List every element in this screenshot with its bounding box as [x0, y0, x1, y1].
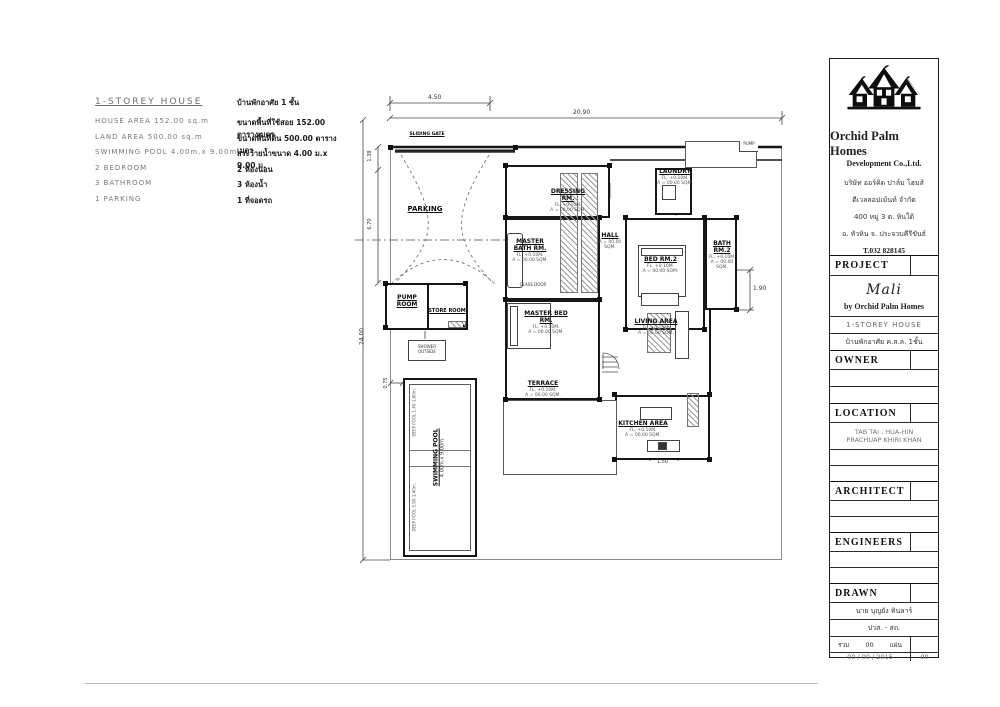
location-line1: TAB TAI , HUA-HIN: [855, 428, 913, 436]
spec-en-1: LAND AREA 500.00 sq.m: [95, 133, 203, 141]
company-address-2: ดีเวลลอปเม้นท์ จำกัด: [852, 195, 916, 206]
drawn-header: DRAWN: [830, 588, 910, 599]
project-type-en: 1-STOREY HOUSE: [846, 321, 922, 329]
page-number-cell: 00: [910, 653, 938, 661]
label-terrace: TERRACE FL. +0.10M. A = 00.00 SQM.: [520, 381, 566, 398]
drawn-name-row: นาย บุญยัง ทินลาร์: [830, 602, 938, 619]
spec-en-2: SWIMMING POOL 4.00m.x 9.00m.: [95, 148, 240, 156]
spec-en-4: 3 BATHROOM: [95, 179, 152, 187]
title-block: Orchid Palm Homes Development Co.,Ltd. บ…: [829, 58, 939, 658]
company-phone: T.032 828145: [863, 246, 905, 255]
pool-deep-top-label: DEEP POOL 1.40-1.80m.: [413, 380, 418, 444]
location-empty-row-2: [830, 465, 938, 481]
pool-deep-bottom-label: DEEP POOL 0.90-1.40m.: [413, 475, 418, 539]
dim-4-50: 4.50: [428, 94, 441, 101]
label-pump-room: PUMP ROOM: [388, 295, 426, 309]
label-dressing: DRESSING RM. FL. +0.10M. A = 00.00 SQM.: [545, 189, 591, 213]
drawing-date: 00 / 00 / 2015: [830, 653, 910, 661]
dim-20-90: 20.90: [573, 109, 590, 116]
kitchen-sink: [658, 442, 667, 450]
owner-header-cell: [910, 351, 938, 369]
engineers-header-cell: [910, 533, 938, 551]
spec-title-en: 1-STOREY HOUSE: [95, 97, 202, 107]
spec-row: 1 PARKING 1 ที่จอดรถ: [95, 195, 345, 211]
label-bath2: BATH RM.2 FL. +0.10M. A = 00.00 SQM.: [707, 241, 737, 270]
project-name-panel: Mali by Orchid Palm Homes: [830, 275, 938, 316]
kitchen-island: [640, 407, 672, 420]
location-line2: PRACHUAP KHIRI KHAN: [846, 436, 921, 444]
label-parking: PARKING: [395, 205, 455, 213]
pump-box: PUMP: [739, 141, 758, 152]
label-glass-door: GLASS DOOR: [515, 283, 551, 288]
spec-row: 2 BEDROOM 2 ห้องนอน: [95, 164, 345, 180]
footer-rule: [85, 683, 818, 684]
engineers-empty-row-2: [830, 567, 938, 583]
spec-th-4: 3 ห้องน้ำ: [237, 179, 267, 191]
dim-6-70: 6.70: [367, 211, 373, 237]
store-shelf-hatch: [448, 321, 466, 328]
company-name: Orchid Palm Homes: [830, 129, 938, 159]
label-master-bath: MASTER BATH RM. FL. +0.10M. A = 00.00 SQ…: [508, 239, 552, 263]
sheet-unit-label: แผ่น: [890, 640, 902, 650]
floor-plan: PUMP: [355, 85, 795, 575]
drawing-sheet: 1-STOREY HOUSE บ้านพักอาศัย 1 ชั้น HOUSE…: [0, 0, 1000, 707]
label-store-room: STORE ROOM: [427, 309, 467, 315]
drawn-name: นาย บุญยัง ทินลาร์: [856, 606, 913, 617]
engineers-header: ENGINEERS: [830, 537, 910, 548]
spec-list: 1-STOREY HOUSE บ้านพักอาศัย 1 ชั้น HOUSE…: [95, 97, 345, 210]
project-type-th: บ้านพักอาศัย ค.ส.ล. 1ชั้น: [845, 337, 922, 348]
company-address-3: 400 หมู่ 3 ต. หินใต้: [854, 212, 914, 223]
sofa-long: [641, 293, 679, 306]
master-bed-pillow: [510, 306, 518, 346]
spec-en-0: HOUSE AREA 152.00 sq.m: [95, 117, 209, 125]
label-bed2: BED RM.2 FL. +0.10M. A = 00.00 SQM.: [638, 257, 683, 274]
date-row: 00 / 00 / 2015 00: [830, 652, 938, 661]
company-address-4: อ. หัวหิน จ. ประจวบคีรีขันธ์: [842, 229, 926, 240]
spec-th-3: 2 ห้องนอน: [237, 164, 273, 176]
owner-header: OWNER: [830, 355, 910, 366]
owner-empty-row-2: [830, 386, 938, 403]
label-living: LIVING AREA FL. +0.10M. A = 00.00 SQM.: [631, 319, 681, 336]
project-name: Mali: [866, 282, 902, 298]
engineers-empty-row-1: [830, 551, 938, 567]
project-header: PROJECT: [830, 260, 910, 271]
sheet-total-cell: [910, 637, 938, 652]
drawn-header-row: DRAWN: [830, 583, 938, 602]
owner-empty-row-1: [830, 369, 938, 386]
company-panel: Orchid Palm Homes Development Co.,Ltd. บ…: [830, 59, 938, 255]
pump-store-divider: [427, 285, 429, 328]
engineers-header-row: ENGINEERS: [830, 532, 938, 551]
project-header-row: PROJECT: [830, 255, 938, 275]
spec-row: HOUSE AREA 152.00 sq.m ขนาดพื้นที่ใช้สอย…: [95, 117, 345, 133]
architect-empty-row-1: [830, 500, 938, 516]
spec-row: SWIMMING POOL 4.00m.x 9.00m. สระว่ายน้ำข…: [95, 148, 345, 164]
project-header-cell: [910, 256, 938, 275]
company-subtitle: Development Co.,Ltd.: [846, 159, 921, 168]
bed2-pillow: [641, 248, 683, 256]
dim-1-90: 1.90: [753, 285, 766, 292]
spec-title-th: บ้านพักอาศัย 1 ชั้น: [237, 97, 299, 109]
label-laundry: LAUNDRY FL. +0.10M. A = 00.00 SQM.: [655, 169, 695, 186]
project-type-th-row: บ้านพักอาศัย ค.ส.ล. 1ชั้น: [830, 333, 938, 350]
project-by: by Orchid Palm Homes: [844, 302, 924, 311]
spec-en-5: 1 PARKING: [95, 195, 141, 203]
label-shower-outside: SHOWER OUTSIDE: [408, 340, 446, 361]
label-hall: HALL A = 00.00 SQM.: [595, 233, 625, 250]
page-number: 00: [920, 653, 928, 661]
location-text-row: TAB TAI , HUA-HIN PRACHUAP KHIRI KHAN: [830, 422, 938, 449]
label-kitchen: KITCHEN AREA FL. +0.10M. A = 00.00 SQM.: [617, 421, 669, 438]
washer: [662, 185, 676, 200]
pantry-hatch: [687, 393, 699, 427]
drawn-header-cell: [910, 584, 938, 602]
architect-empty-row-2: [830, 516, 938, 532]
dim-1-50: 1.50: [657, 459, 668, 465]
dim-24-00: 24.00: [359, 322, 366, 352]
location-header-cell: [910, 404, 938, 422]
spec-en-3: 2 BEDROOM: [95, 164, 147, 172]
dim-0-75: 0.75: [383, 370, 389, 396]
spec-row: LAND AREA 500.00 sq.m ขนาดพื้นที่ดิน 500…: [95, 133, 345, 149]
drawn-cert-row: ปวส. - สถ.: [830, 619, 938, 636]
architect-header: ARCHITECT: [830, 486, 910, 497]
project-type-row: 1-STOREY HOUSE: [830, 316, 938, 333]
dim-1-38: 1.38: [367, 143, 373, 169]
location-header-row: LOCATION: [830, 403, 938, 422]
location-empty-row-1: [830, 449, 938, 465]
label-master-bed: MASTER BED RM. FL. +0.10M. A = 00.00 SQM…: [521, 311, 571, 335]
spec-th-5: 1 ที่จอดรถ: [237, 195, 272, 207]
owner-header-row: OWNER: [830, 350, 938, 369]
drawn-cert: ปวส. - สถ.: [868, 623, 901, 634]
terrace-slab: [503, 400, 617, 475]
sheet-total-value: 00: [865, 641, 873, 649]
company-logo: [838, 65, 930, 127]
sheet-total-row: รวม 00 แผ่น: [830, 636, 938, 652]
company-address-1: บริษัท ออร์คิด ปาล์ม โฮมส์: [844, 178, 924, 189]
sheet-total-label: รวม: [838, 640, 849, 650]
pump-box-label: PUMP: [743, 141, 754, 146]
location-header: LOCATION: [830, 408, 910, 419]
architect-header-row: ARCHITECT: [830, 481, 938, 500]
architect-header-cell: [910, 482, 938, 500]
pool-label: SWIMMING POOL 4.00m.x 9.00m.: [434, 377, 447, 537]
spec-row: 3 BATHROOM 3 ห้องน้ำ: [95, 179, 345, 195]
label-sliding-gate: SLIDING GATE: [397, 132, 457, 137]
